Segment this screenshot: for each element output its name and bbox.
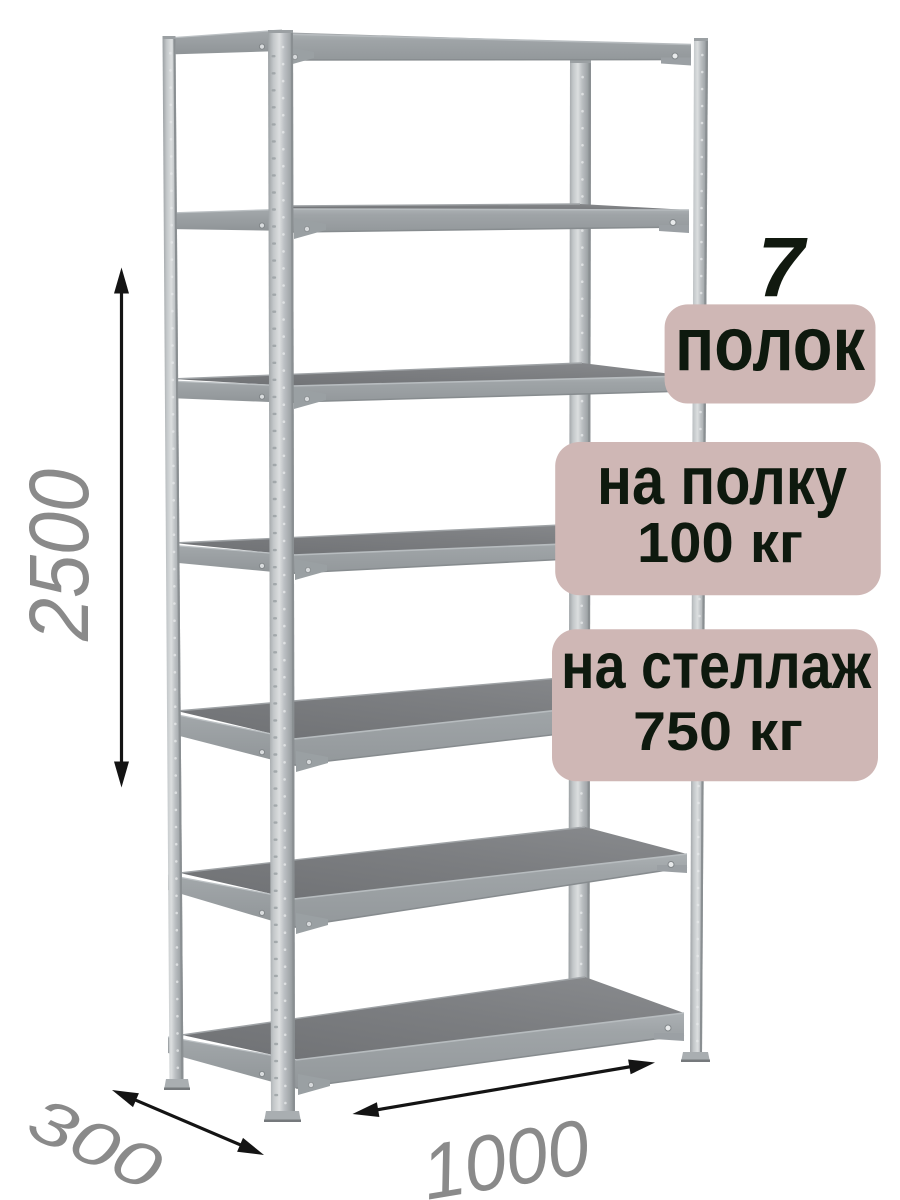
svg-text:на стеллаж: на стеллаж xyxy=(561,629,872,702)
svg-text:полок: полок xyxy=(675,302,866,387)
svg-text:750 кг: 750 кг xyxy=(633,700,803,762)
svg-text:на полку: на полку xyxy=(597,443,847,519)
svg-text:7: 7 xyxy=(758,220,808,314)
svg-text:2500: 2500 xyxy=(12,469,106,642)
svg-text:100 кг: 100 кг xyxy=(637,511,803,575)
